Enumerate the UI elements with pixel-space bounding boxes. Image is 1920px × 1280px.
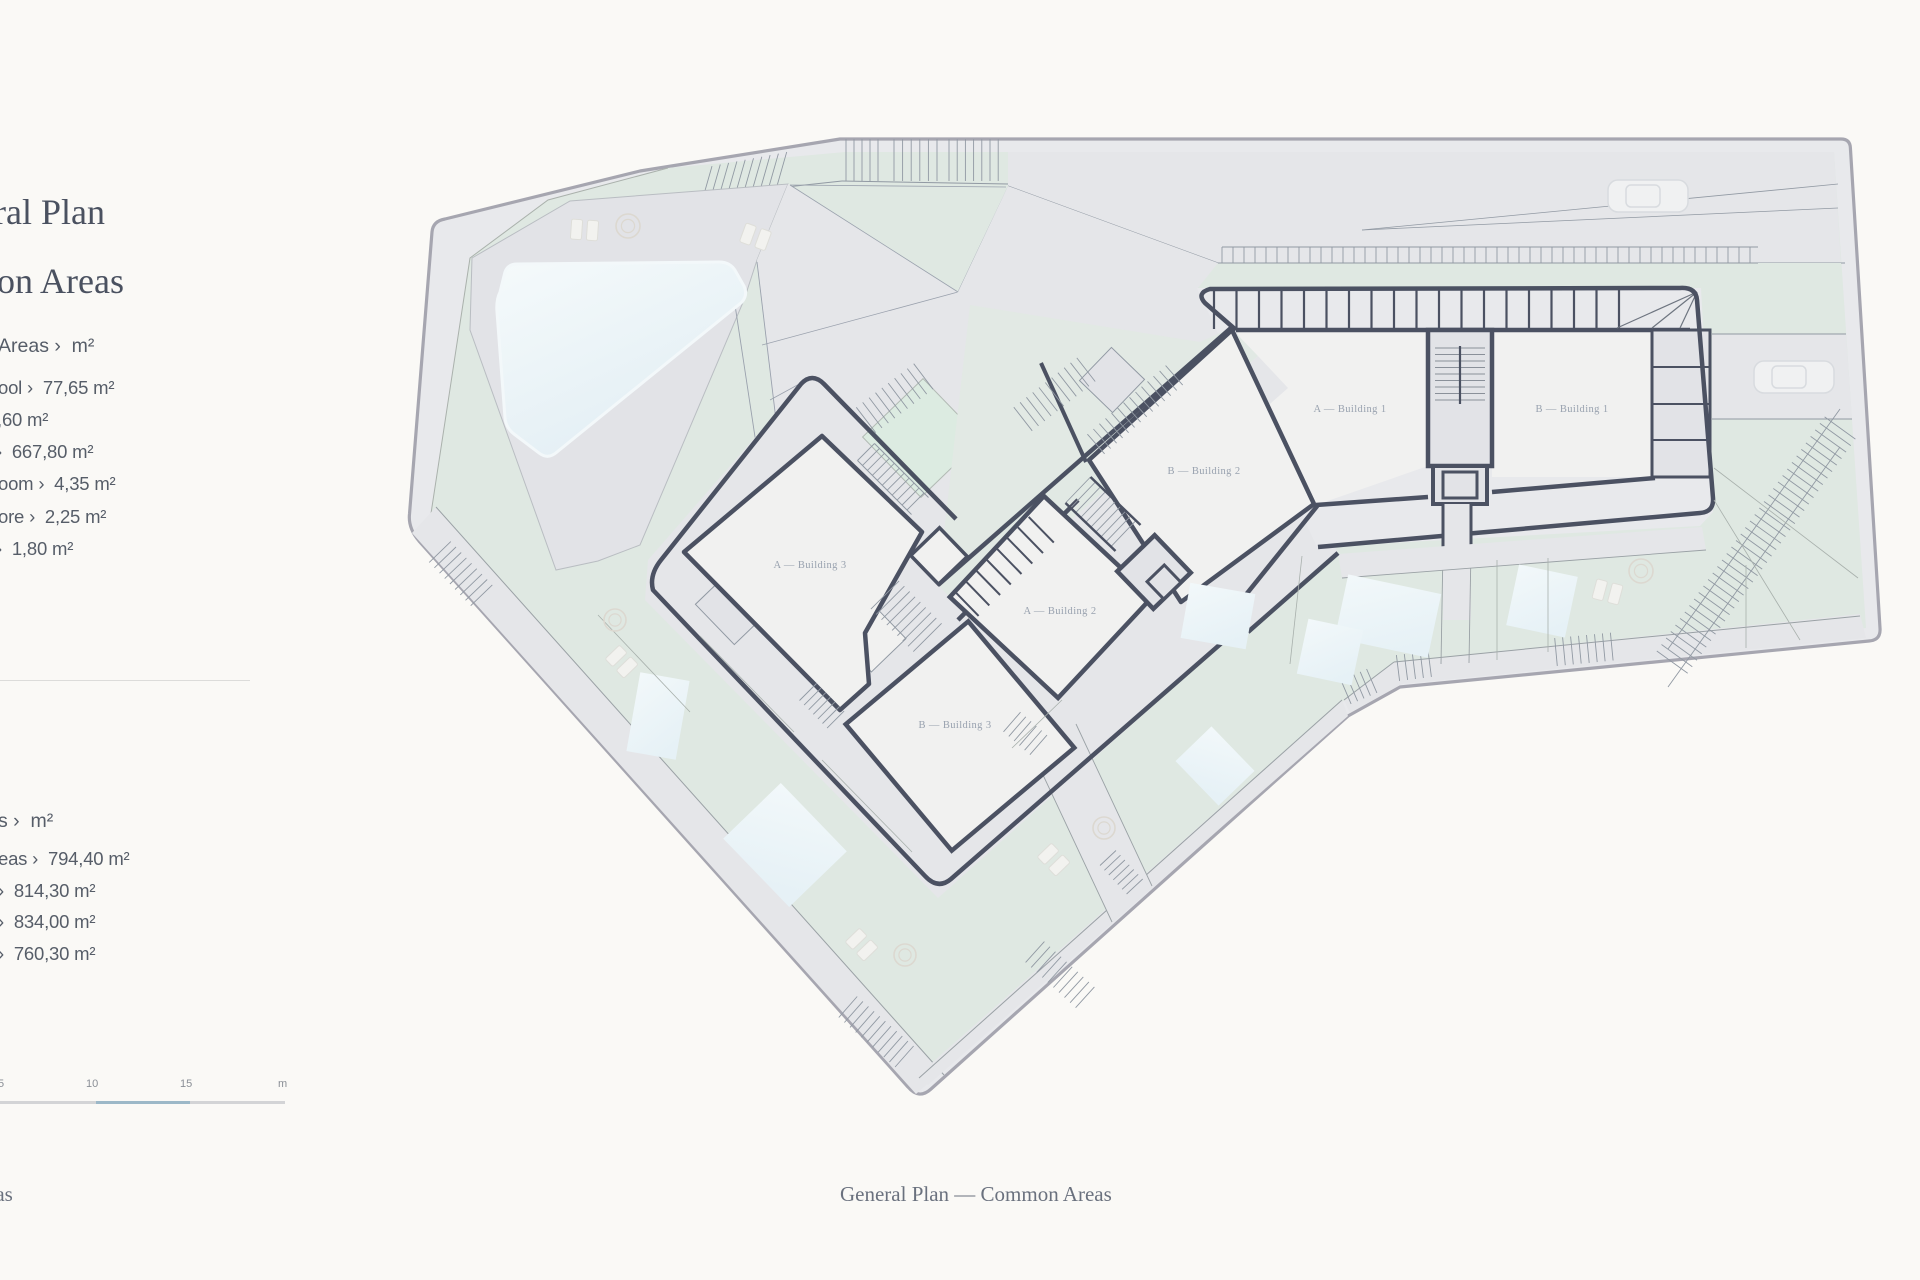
- svg-text:A — Building 1: A — Building 1: [1314, 404, 1387, 415]
- svg-text:A — Building 2: A — Building 2: [1024, 606, 1097, 617]
- svg-text:B — Building 1: B — Building 1: [1536, 404, 1609, 415]
- svg-text:B — Building 3: B — Building 3: [919, 720, 992, 731]
- svg-text:B — Building 2: B — Building 2: [1168, 466, 1241, 477]
- svg-text:A — Building 3: A — Building 3: [774, 560, 847, 571]
